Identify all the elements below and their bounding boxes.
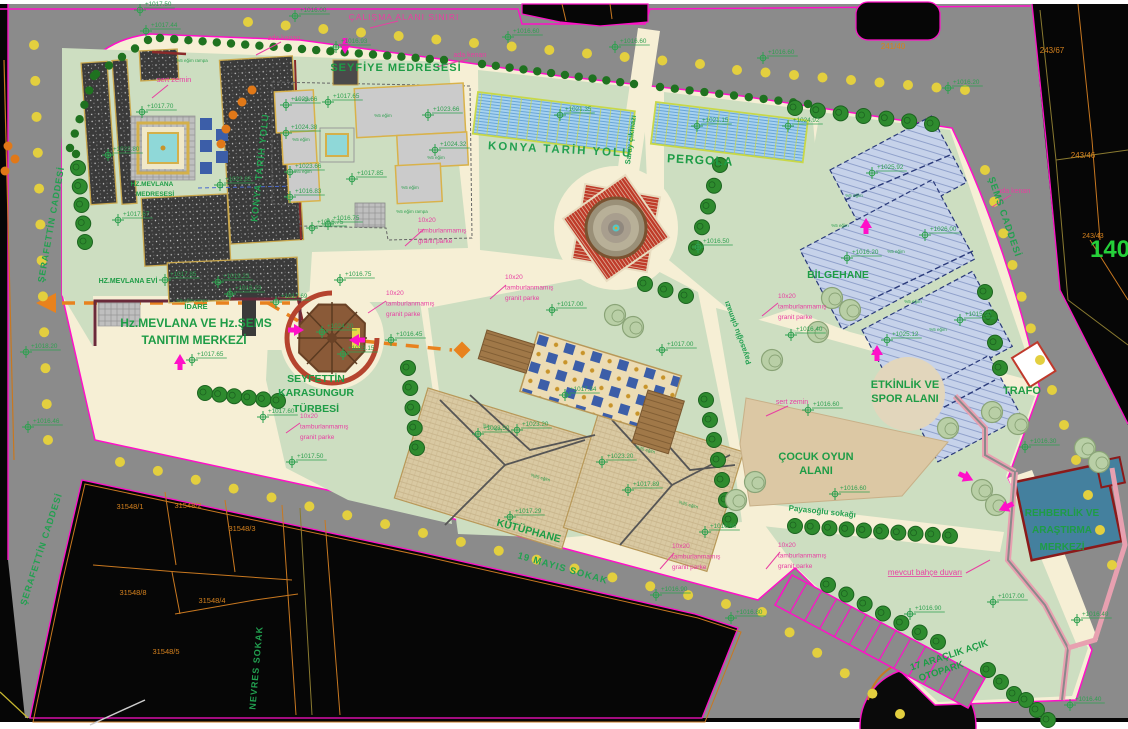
tree	[689, 241, 704, 256]
elevation-value: +1023.66	[295, 163, 322, 170]
tree	[71, 161, 86, 176]
tree-dot	[478, 60, 486, 68]
elevation-value: +1021.15	[702, 117, 729, 124]
orange-dot	[222, 125, 231, 134]
map-label: 10x20	[505, 274, 523, 281]
map-label: %5 eğim	[427, 155, 445, 160]
tree	[912, 625, 927, 640]
elevation-value: +1018.20	[31, 343, 58, 350]
tree-dot	[213, 38, 221, 46]
street-light-dot	[243, 17, 253, 27]
bush	[1008, 414, 1029, 435]
tree-dot	[369, 50, 377, 58]
map-label: BİLGEHANE	[807, 268, 869, 281]
elevation-value: +1017.65	[197, 351, 224, 358]
elevation-value: +1016.40	[1075, 696, 1102, 703]
elevation-value: +1023.66	[291, 96, 318, 103]
street-light-dot	[695, 59, 705, 69]
street-light-dot	[431, 35, 441, 45]
street-light-dot	[30, 76, 40, 86]
elevation-value: +1016.30	[1030, 438, 1057, 445]
street-light-dot	[153, 466, 163, 476]
elevation-value: +1016.60	[768, 49, 795, 56]
tree	[925, 117, 940, 132]
map-label: %5 eğim	[292, 137, 310, 142]
map-label: MEDRESESİ	[136, 190, 174, 198]
tree-dot	[505, 63, 513, 71]
tree	[902, 114, 917, 129]
street-light-dot	[620, 52, 630, 62]
street-light-dot	[960, 85, 970, 95]
bush	[745, 472, 766, 493]
map-label: İDARE	[184, 302, 207, 311]
tree-dot	[144, 36, 152, 44]
tree-dot	[685, 86, 693, 94]
elevation-value: +1023.15	[348, 345, 375, 352]
map-label: tamburlanmamış	[386, 301, 435, 308]
map-label: TRAFO	[1003, 385, 1041, 397]
street-light-dot	[846, 75, 856, 85]
street-light-dot	[35, 220, 45, 230]
bush	[840, 300, 861, 321]
elevation-value: +1016.80	[736, 609, 763, 616]
street-light-dot	[29, 40, 39, 50]
street-light-dot	[1017, 292, 1027, 302]
street-light-dot	[932, 83, 942, 93]
street-light-dot	[895, 709, 905, 719]
tree-dot	[227, 39, 235, 47]
bush	[1089, 452, 1110, 473]
map-label: granit parke	[300, 434, 335, 441]
map-label: tamburlanmamış	[672, 554, 721, 561]
tree	[988, 335, 1003, 350]
tree	[198, 386, 213, 401]
tree-dot	[284, 44, 292, 52]
tree-dot	[397, 53, 405, 61]
tree	[701, 199, 716, 214]
seyfiye-courtyard-pool	[326, 134, 348, 156]
tree-dot	[170, 35, 178, 43]
map-label: granit parke	[505, 295, 540, 302]
bush	[938, 418, 959, 439]
elevation-value: +1017.00	[667, 341, 694, 348]
map-label: granit parke	[386, 311, 421, 318]
tree	[638, 277, 653, 292]
street-light-dot	[840, 668, 850, 678]
elevation-value: +1015.90	[965, 311, 992, 318]
orange-dot	[217, 140, 226, 149]
map-label: 140	[1090, 236, 1128, 263]
map-label: %5 eğim	[831, 223, 849, 228]
tree-dot	[298, 45, 306, 53]
seyfiye-block	[395, 163, 442, 203]
map-label: %5 eğim rampa	[176, 58, 208, 63]
tree-dot	[730, 91, 738, 99]
street-light-dot	[469, 38, 479, 48]
tree-dot	[774, 96, 782, 104]
tree	[695, 220, 710, 235]
bush	[982, 402, 1003, 423]
tree	[874, 524, 889, 539]
site-plan-window: { "plan_title": "Konya Mevlana çevresi p…	[0, 0, 1128, 729]
bush	[762, 350, 783, 371]
street-light-dot	[875, 78, 885, 88]
street-light-dot	[456, 537, 466, 547]
street-light-dot	[229, 484, 239, 494]
elevation-value: +1016.00	[300, 7, 327, 14]
map-label: 241/40	[881, 42, 906, 51]
street-light-dot	[33, 148, 43, 158]
street-light-dot	[191, 475, 201, 485]
tree	[879, 111, 894, 126]
tree	[839, 522, 854, 537]
elevation-value: +1016.60	[710, 523, 737, 530]
orange-dot	[1, 167, 10, 176]
map-label: SEYFETTİN	[287, 372, 345, 385]
tree	[711, 453, 726, 468]
tree-dot	[575, 73, 583, 81]
map-label: ada kenarı	[453, 52, 486, 59]
elevation-value: +1016.50	[703, 238, 730, 245]
map-label: granit parke	[672, 564, 707, 571]
elevation-value: +1017.00	[557, 301, 584, 308]
street-light-dot	[980, 165, 990, 175]
tree	[72, 179, 87, 194]
map-label: ÇOCUK OYUN	[778, 451, 853, 463]
tree	[212, 387, 227, 402]
tree	[74, 198, 89, 213]
elevation-value: +1025.12	[892, 331, 919, 338]
tree-dot	[75, 115, 83, 123]
street-light-dot	[1059, 420, 1069, 430]
map-label: Hz.MEVLANA VE Hz.ŞEMS	[120, 316, 272, 330]
tree	[981, 663, 996, 678]
elevation-value: +1026.00	[930, 226, 957, 233]
map-label: SEYFİYE MEDRESESİ	[330, 61, 461, 74]
street-light-dot	[1026, 323, 1036, 333]
street-light-dot	[785, 627, 795, 637]
elevation-value: +1022.80	[113, 146, 140, 153]
map-label: TANITIM MERKEZİ	[141, 332, 246, 347]
map-label: 31548/5	[152, 647, 179, 656]
elevation-value: +1017.85	[170, 271, 197, 278]
map-label: %5 eğim rampa	[176, 298, 208, 303]
map-label: %5 eğim rampa	[396, 209, 428, 214]
tree	[943, 529, 958, 544]
street-light-dot	[1008, 260, 1018, 270]
tree-dot	[383, 51, 391, 59]
elevation-value: +1023.66	[433, 106, 460, 113]
tree	[978, 285, 993, 300]
elevation-value: +1016.45	[396, 331, 423, 338]
map-label: HZ.MEVLANA	[131, 181, 174, 188]
tree	[788, 101, 803, 116]
elevation-value: +1016.75	[317, 219, 344, 226]
tree	[839, 587, 854, 602]
street-light-dot	[544, 45, 554, 55]
street-light-dot	[418, 528, 428, 538]
street-light-dot	[42, 399, 52, 409]
map-label: %5 eğim	[904, 299, 922, 304]
site-plan-canvas[interactable]: ÇALIŞMA ALANI SINIRIada kenarıada kenarı…	[0, 0, 1128, 729]
map-label: MERKEZİ	[1040, 540, 1085, 553]
mevlana-center-block	[141, 194, 230, 266]
map-label: %5 eğim	[845, 193, 863, 198]
map-label: granit parke	[778, 314, 813, 321]
tree-dot	[198, 37, 206, 45]
tree	[256, 392, 271, 407]
tree	[227, 389, 242, 404]
elevation-value: +1017.44	[151, 22, 178, 29]
elevation-value: +1017.70	[147, 103, 174, 110]
elevation-value: +1016.46	[33, 418, 60, 425]
seyfiye-entrance	[355, 203, 385, 227]
map-label: 243/67	[1040, 46, 1065, 55]
map-label: HZ.MEVLANA EVİ	[99, 277, 158, 285]
tree-dot	[355, 49, 363, 57]
map-label: TÜRBESİ	[293, 402, 339, 415]
tree	[857, 597, 872, 612]
elevation-value: +1023.20	[522, 421, 549, 428]
street-light-dot	[318, 24, 328, 34]
elevation-value: +1017.34	[570, 386, 597, 393]
elevation-value: +1024.38	[291, 124, 318, 131]
street-light-dot	[43, 435, 53, 445]
elevation-value: +1025.92	[877, 164, 904, 171]
orange-dot	[229, 111, 238, 120]
tree	[76, 216, 91, 231]
map-label: REHBERLİK VE	[1025, 506, 1100, 519]
map-label: %5 eğim	[374, 113, 392, 118]
map-label: 243/46	[1071, 151, 1096, 160]
mevlana-courtyard	[131, 116, 195, 180]
tree	[707, 178, 722, 193]
elevation-value: +1016.60	[513, 28, 540, 35]
tree-dot	[156, 34, 164, 42]
street-light-dot	[356, 28, 366, 38]
tree	[707, 433, 722, 448]
tree-dot	[588, 74, 596, 82]
map-label: ada kenarı	[267, 35, 300, 42]
map-label: KARASUNGUR	[278, 387, 354, 399]
tree	[925, 527, 940, 542]
street-light-dot	[394, 31, 404, 41]
tree-dot	[715, 90, 723, 98]
elevation-value: +1023.50	[483, 425, 510, 432]
map-label: SPOR ALANI	[871, 393, 938, 405]
street-light-dot	[903, 80, 913, 90]
elevation-value: +1017.85	[357, 170, 384, 177]
tree-dot	[241, 40, 249, 48]
tree-dot	[492, 62, 500, 70]
tree	[993, 361, 1008, 376]
elevation-value: +1016.60	[813, 401, 840, 408]
map-label: ÇALIŞMA ALANI SINIRI	[349, 12, 460, 22]
tree	[407, 421, 422, 436]
map-label: 31548/4	[198, 596, 225, 605]
map-label: %5 eğim	[887, 249, 905, 254]
tree-dot	[92, 70, 100, 78]
map-label: %5 eğim	[401, 185, 419, 190]
elevation-value: +1017.29	[515, 508, 542, 515]
tree	[78, 235, 93, 250]
street-light-dot	[115, 457, 125, 467]
street-light-dot	[657, 56, 667, 66]
street-light-dot	[582, 49, 592, 59]
street-light-dot	[281, 21, 291, 31]
elevation-value: +1017.69	[281, 293, 308, 300]
elevation-value: +1024.32	[440, 141, 467, 148]
tree	[891, 525, 906, 540]
tree-dot	[72, 150, 80, 158]
tree	[403, 381, 418, 396]
tree	[856, 109, 871, 124]
elevation-value: +1016.60	[840, 485, 867, 492]
orange-dot	[238, 98, 247, 107]
map-label: ETKİNLİK VE	[871, 378, 939, 391]
tree	[1041, 713, 1056, 728]
street-light-dot	[39, 327, 49, 337]
tree-dot	[700, 88, 708, 96]
elevation-value: +1016.20	[953, 79, 980, 86]
elevation-value: +1019.23	[223, 273, 250, 280]
map-label: tamburlanmamış	[300, 424, 349, 431]
street-light-dot	[1071, 455, 1081, 465]
tree-dot	[131, 44, 139, 52]
tree	[822, 521, 837, 536]
bush	[623, 317, 644, 338]
tree	[908, 526, 923, 541]
tree	[856, 523, 871, 538]
street-light-dot	[267, 493, 277, 503]
map-label: tamburlanmamış	[778, 553, 827, 560]
street-light-dot	[721, 599, 731, 609]
elevation-value: +1016.40	[796, 326, 823, 333]
tree	[805, 520, 820, 535]
street-light-dot	[1083, 490, 1093, 500]
tree-dot	[184, 36, 192, 44]
tree-dot	[118, 53, 126, 61]
tree	[833, 106, 848, 121]
tree	[679, 289, 694, 304]
map-label: ARAŞTIRMA	[1032, 525, 1092, 536]
map-label: 10x20	[386, 290, 404, 297]
elevation-value: +1016.75	[345, 271, 372, 278]
tree-dot	[616, 78, 624, 86]
elevation-value: +1016.60	[620, 38, 647, 45]
tree-dot	[66, 144, 74, 152]
tree	[894, 616, 909, 631]
star-fountain	[554, 166, 678, 290]
elevation-value: +1016.20	[852, 249, 879, 256]
map-label: %5 eğim	[929, 327, 947, 332]
street-light-dot	[34, 184, 44, 194]
street-light-dot	[1107, 560, 1117, 570]
map-label: granit parke	[778, 563, 813, 570]
elevation-value: +1016.90	[915, 605, 942, 612]
tree-dot	[312, 46, 320, 54]
map-label: 31548/3	[228, 524, 255, 533]
map-label: granit parke	[418, 238, 453, 245]
elevation-value: +1016.90	[661, 586, 688, 593]
elevation-value: +1017.67	[123, 211, 150, 218]
street-light-dot	[607, 572, 617, 582]
map-label: sert zemin	[776, 399, 808, 406]
map-label: tamburlanmamış	[418, 228, 467, 235]
street-light-dot	[761, 68, 771, 78]
elevation-value: +1016.40	[1082, 611, 1109, 618]
tree-dot	[602, 76, 610, 84]
street-light-dot	[1035, 355, 1045, 365]
street-light-dot	[342, 510, 352, 520]
street-light-dot	[818, 73, 828, 83]
elevation-value: +1016.93	[341, 38, 368, 45]
map-label: ALANI	[799, 465, 833, 477]
tree	[821, 578, 836, 593]
tree	[405, 401, 420, 416]
tree	[810, 103, 825, 118]
tree	[401, 361, 416, 376]
tree-dot	[745, 93, 753, 101]
tree-dot	[671, 85, 679, 93]
parcel-241-40	[856, 2, 940, 40]
street-light-dot	[645, 581, 655, 591]
tree	[994, 675, 1009, 690]
street-light-dot	[1047, 385, 1057, 395]
tree-dot	[561, 71, 569, 79]
tree-dot	[759, 95, 767, 103]
elevation-value: +1017.00	[998, 593, 1025, 600]
tree-dot	[255, 42, 263, 50]
tree-dot	[547, 69, 555, 77]
street-light-dot	[38, 291, 48, 301]
elevation-value: +1017.89	[633, 481, 660, 488]
street-light-dot	[304, 501, 314, 511]
tree	[241, 390, 256, 405]
tree	[658, 283, 673, 298]
street-light-dot	[32, 112, 42, 122]
tree-dot	[411, 54, 419, 62]
elevation-value: +1016.23	[235, 285, 262, 292]
street-light-dot	[732, 65, 742, 75]
street-light-dot	[867, 689, 877, 699]
street-light-dot	[789, 70, 799, 80]
elevation-value: +1022.85	[225, 176, 252, 183]
tree	[699, 393, 714, 408]
map-label: tamburlanmamış	[505, 285, 554, 292]
tree-dot	[105, 61, 113, 69]
tree	[931, 635, 946, 650]
map-label: 10x20	[418, 217, 436, 224]
street-light-dot	[40, 363, 50, 373]
elevation-value: +1024.92	[793, 117, 820, 124]
street-light-dot	[812, 648, 822, 658]
elevation-value: +1017.60	[268, 408, 295, 415]
elevation-value: +1017.50	[297, 453, 324, 460]
map-label: mevcut bahçe duvarı	[888, 568, 962, 577]
tree-dot	[71, 129, 79, 137]
elevation-value: +1023.20	[607, 453, 634, 460]
orange-dot	[11, 155, 20, 164]
elevation-value: +1016.83	[295, 188, 322, 195]
map-label: tamburlanmamış	[778, 304, 827, 311]
tree	[715, 473, 730, 488]
tree-dot	[630, 80, 638, 88]
bush	[605, 305, 626, 326]
tree-dot	[656, 83, 664, 91]
map-label: 31548/1	[116, 502, 143, 511]
map-label: 31548/2	[174, 501, 201, 510]
